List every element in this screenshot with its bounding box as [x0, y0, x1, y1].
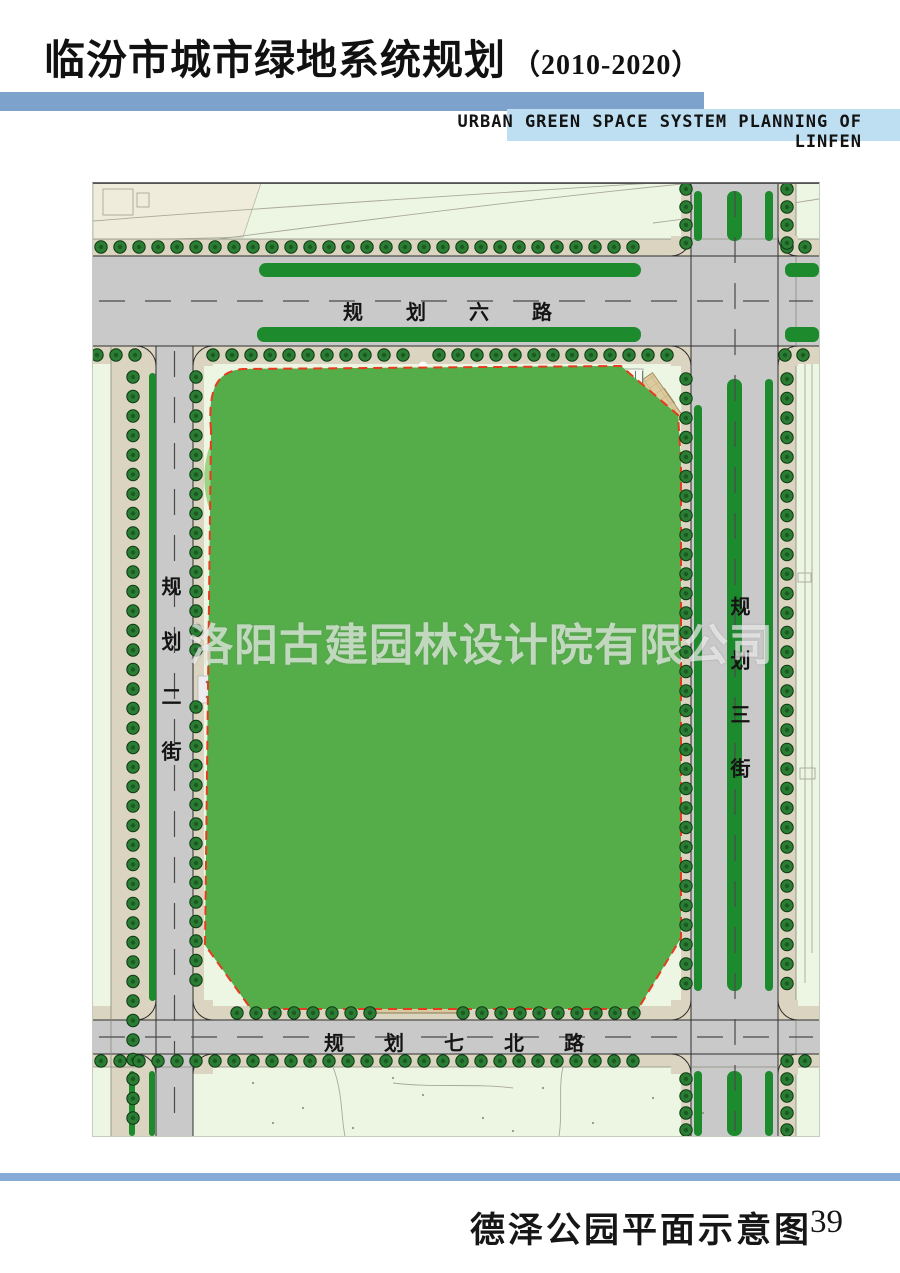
page-number: 39 — [810, 1204, 843, 1241]
road-label-south: 规划七北路 — [324, 1027, 624, 1056]
park-boundary — [205, 366, 681, 1009]
document-page: 临汾市城市绿地系统规划（2010-2020） URBAN GREEN SPACE… — [0, 0, 900, 1273]
subtitle-text: URBAN GREEN SPACE SYSTEM PLANNING OF LIN… — [380, 112, 862, 152]
map-caption: 德泽公园平面示意图 — [470, 1202, 812, 1253]
park-plan-map: 规划六路 规划七北路 规划二街 规划三街 洛阳古建园林设计院有限公司 — [92, 182, 820, 1137]
footer-rule — [0, 1173, 900, 1181]
park — [185, 366, 685, 1013]
road-label-west: 规划二街 — [155, 576, 184, 796]
page-title: 临汾市城市绿地系统规划（2010-2020） — [44, 26, 700, 86]
road-label-north: 规划六路 — [343, 296, 595, 325]
title-period: （2010-2020） — [512, 50, 700, 81]
title-cn: 临汾市城市绿地系统规划 — [44, 37, 506, 83]
watermark: 洛阳古建园林设计院有限公司 — [189, 609, 774, 673]
